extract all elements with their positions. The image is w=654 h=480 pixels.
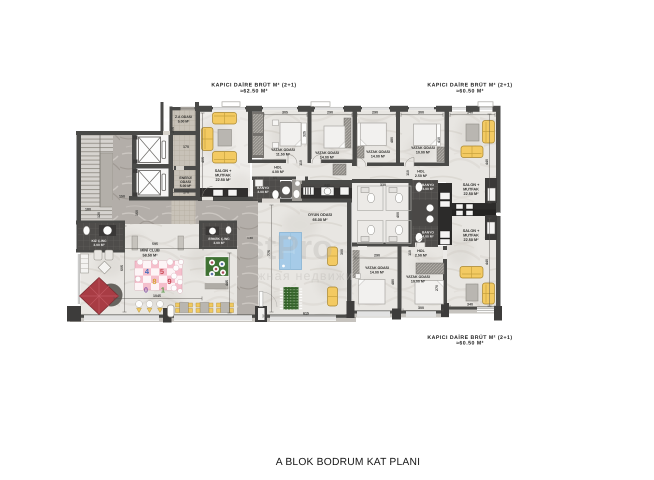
- svg-text:410: 410: [437, 137, 441, 143]
- svg-text:≈62.50 M²: ≈62.50 M²: [240, 88, 268, 94]
- svg-text:325: 325: [303, 131, 307, 137]
- svg-text:300: 300: [340, 249, 344, 255]
- svg-text:480: 480: [390, 137, 394, 143]
- svg-text:14.00 M²: 14.00 M²: [371, 155, 386, 159]
- svg-text:жная недвижи: жная недвижи: [257, 269, 354, 283]
- svg-text:KAPICI DAİRE BRÜT M² (2+1): KAPICI DAİRE BRÜT M² (2+1): [211, 81, 296, 88]
- svg-text:MUTFAK: MUTFAK: [463, 188, 479, 192]
- svg-text:HOL: HOL: [417, 249, 425, 253]
- svg-text:445: 445: [225, 280, 229, 286]
- svg-text:120: 120: [97, 212, 101, 218]
- svg-text:0: 0: [144, 286, 148, 295]
- svg-text:330: 330: [380, 183, 386, 187]
- svg-text:290: 290: [374, 254, 380, 258]
- svg-text:270: 270: [435, 285, 439, 291]
- svg-text:14.00 M²: 14.00 M²: [370, 271, 385, 275]
- svg-text:2.50 M²: 2.50 M²: [415, 254, 428, 258]
- svg-text:1: 1: [161, 286, 165, 295]
- svg-text:10.00 M²: 10.00 M²: [411, 280, 426, 284]
- svg-text:8: 8: [152, 277, 156, 286]
- svg-text:11.50 M²: 11.50 M²: [276, 153, 291, 157]
- svg-text:305: 305: [282, 111, 288, 115]
- svg-text:A BLOK BODRUM KAT PLANI: A BLOK BODRUM KAT PLANI: [276, 457, 420, 468]
- svg-text:KAPICI DAİRE BRÜT M² (2+1): KAPICI DAİRE BRÜT M² (2+1): [427, 81, 512, 88]
- svg-text:110: 110: [406, 170, 410, 176]
- svg-text:290: 290: [327, 111, 333, 115]
- svg-text:YATAK ODASI: YATAK ODASI: [271, 148, 295, 152]
- svg-text:340: 340: [467, 303, 473, 307]
- svg-text:YATAK ODASI: YATAK ODASI: [366, 150, 390, 154]
- svg-text:595: 595: [152, 242, 158, 246]
- svg-text:YATAK ODASI: YATAK ODASI: [411, 146, 435, 150]
- svg-text:YATAK ODASI: YATAK ODASI: [406, 275, 430, 279]
- svg-text:110: 110: [299, 160, 303, 166]
- svg-text:SALON +: SALON +: [463, 183, 480, 187]
- svg-text:MİNİ CLUB: MİNİ CLUB: [140, 248, 160, 253]
- svg-text:150: 150: [119, 195, 125, 199]
- svg-text:5.00 M²: 5.00 M²: [180, 184, 192, 188]
- svg-text:400: 400: [396, 212, 400, 218]
- svg-text:480: 480: [391, 279, 395, 285]
- svg-text:605: 605: [120, 265, 124, 271]
- svg-text:66.00 M²: 66.00 M²: [313, 218, 329, 222]
- svg-text:4.00 M²: 4.00 M²: [272, 170, 285, 174]
- svg-text:1.50: 1.50: [247, 236, 253, 240]
- svg-text:14.00 M²: 14.00 M²: [320, 156, 335, 160]
- svg-text:YATAK ODASI: YATAK ODASI: [315, 151, 339, 155]
- svg-text:22.50 M²: 22.50 M²: [216, 178, 232, 182]
- svg-text:150: 150: [135, 210, 139, 216]
- svg-text:≈60.50 M²: ≈60.50 M²: [456, 340, 484, 346]
- svg-text:2.50 M²: 2.50 M²: [415, 174, 428, 178]
- svg-text:22.50 M²: 22.50 M²: [464, 192, 480, 196]
- svg-text:290: 290: [372, 111, 378, 115]
- svg-text:58.50 M²: 58.50 M²: [143, 254, 159, 258]
- svg-text:3.00 M²: 3.00 M²: [93, 243, 105, 247]
- svg-text:22.50 M²: 22.50 M²: [464, 238, 480, 242]
- svg-text:OYUN ODASI: OYUN ODASI: [308, 213, 332, 217]
- svg-text:SALON +: SALON +: [215, 169, 232, 173]
- svg-text:4.00 M²: 4.00 M²: [257, 190, 269, 194]
- svg-text:SALON +: SALON +: [463, 229, 480, 233]
- svg-text:300: 300: [418, 306, 424, 310]
- svg-text:9: 9: [167, 277, 171, 286]
- svg-text:5.00 M²: 5.00 M²: [178, 120, 190, 124]
- svg-text:≈60.50 M²: ≈60.50 M²: [456, 88, 484, 94]
- svg-text:stPro: stPro: [246, 229, 333, 267]
- svg-text:205: 205: [171, 127, 175, 133]
- svg-text:775: 775: [267, 250, 271, 256]
- svg-text:300: 300: [418, 111, 424, 115]
- svg-text:3.00 M²: 3.00 M²: [213, 241, 225, 245]
- svg-text:HOL: HOL: [274, 166, 282, 170]
- svg-text:170: 170: [183, 145, 189, 149]
- svg-text:170: 170: [183, 191, 189, 195]
- svg-text:4.00 M²: 4.00 M²: [422, 187, 434, 191]
- svg-text:HOL: HOL: [417, 170, 425, 174]
- svg-text:440: 440: [324, 184, 330, 188]
- svg-text:55: 55: [273, 176, 277, 180]
- svg-text:110: 110: [408, 250, 412, 256]
- svg-text:YATAK ODASI: YATAK ODASI: [365, 266, 389, 270]
- svg-text:615: 615: [303, 312, 309, 316]
- svg-text:1045: 1045: [153, 294, 161, 298]
- svg-text:405: 405: [201, 157, 205, 163]
- svg-text:4.00 M²: 4.00 M²: [422, 235, 434, 239]
- svg-text:440: 440: [485, 159, 489, 165]
- svg-text:440: 440: [485, 259, 489, 265]
- svg-text:180: 180: [85, 208, 91, 212]
- svg-text:MUTFAK: MUTFAK: [215, 174, 231, 178]
- svg-text:MUTFAK: MUTFAK: [463, 234, 479, 238]
- svg-text:5: 5: [160, 267, 164, 276]
- svg-text:10.00 M²: 10.00 M²: [416, 151, 431, 155]
- svg-text:Z.A ODASI: Z.A ODASI: [175, 115, 192, 119]
- svg-text:340: 340: [467, 111, 473, 115]
